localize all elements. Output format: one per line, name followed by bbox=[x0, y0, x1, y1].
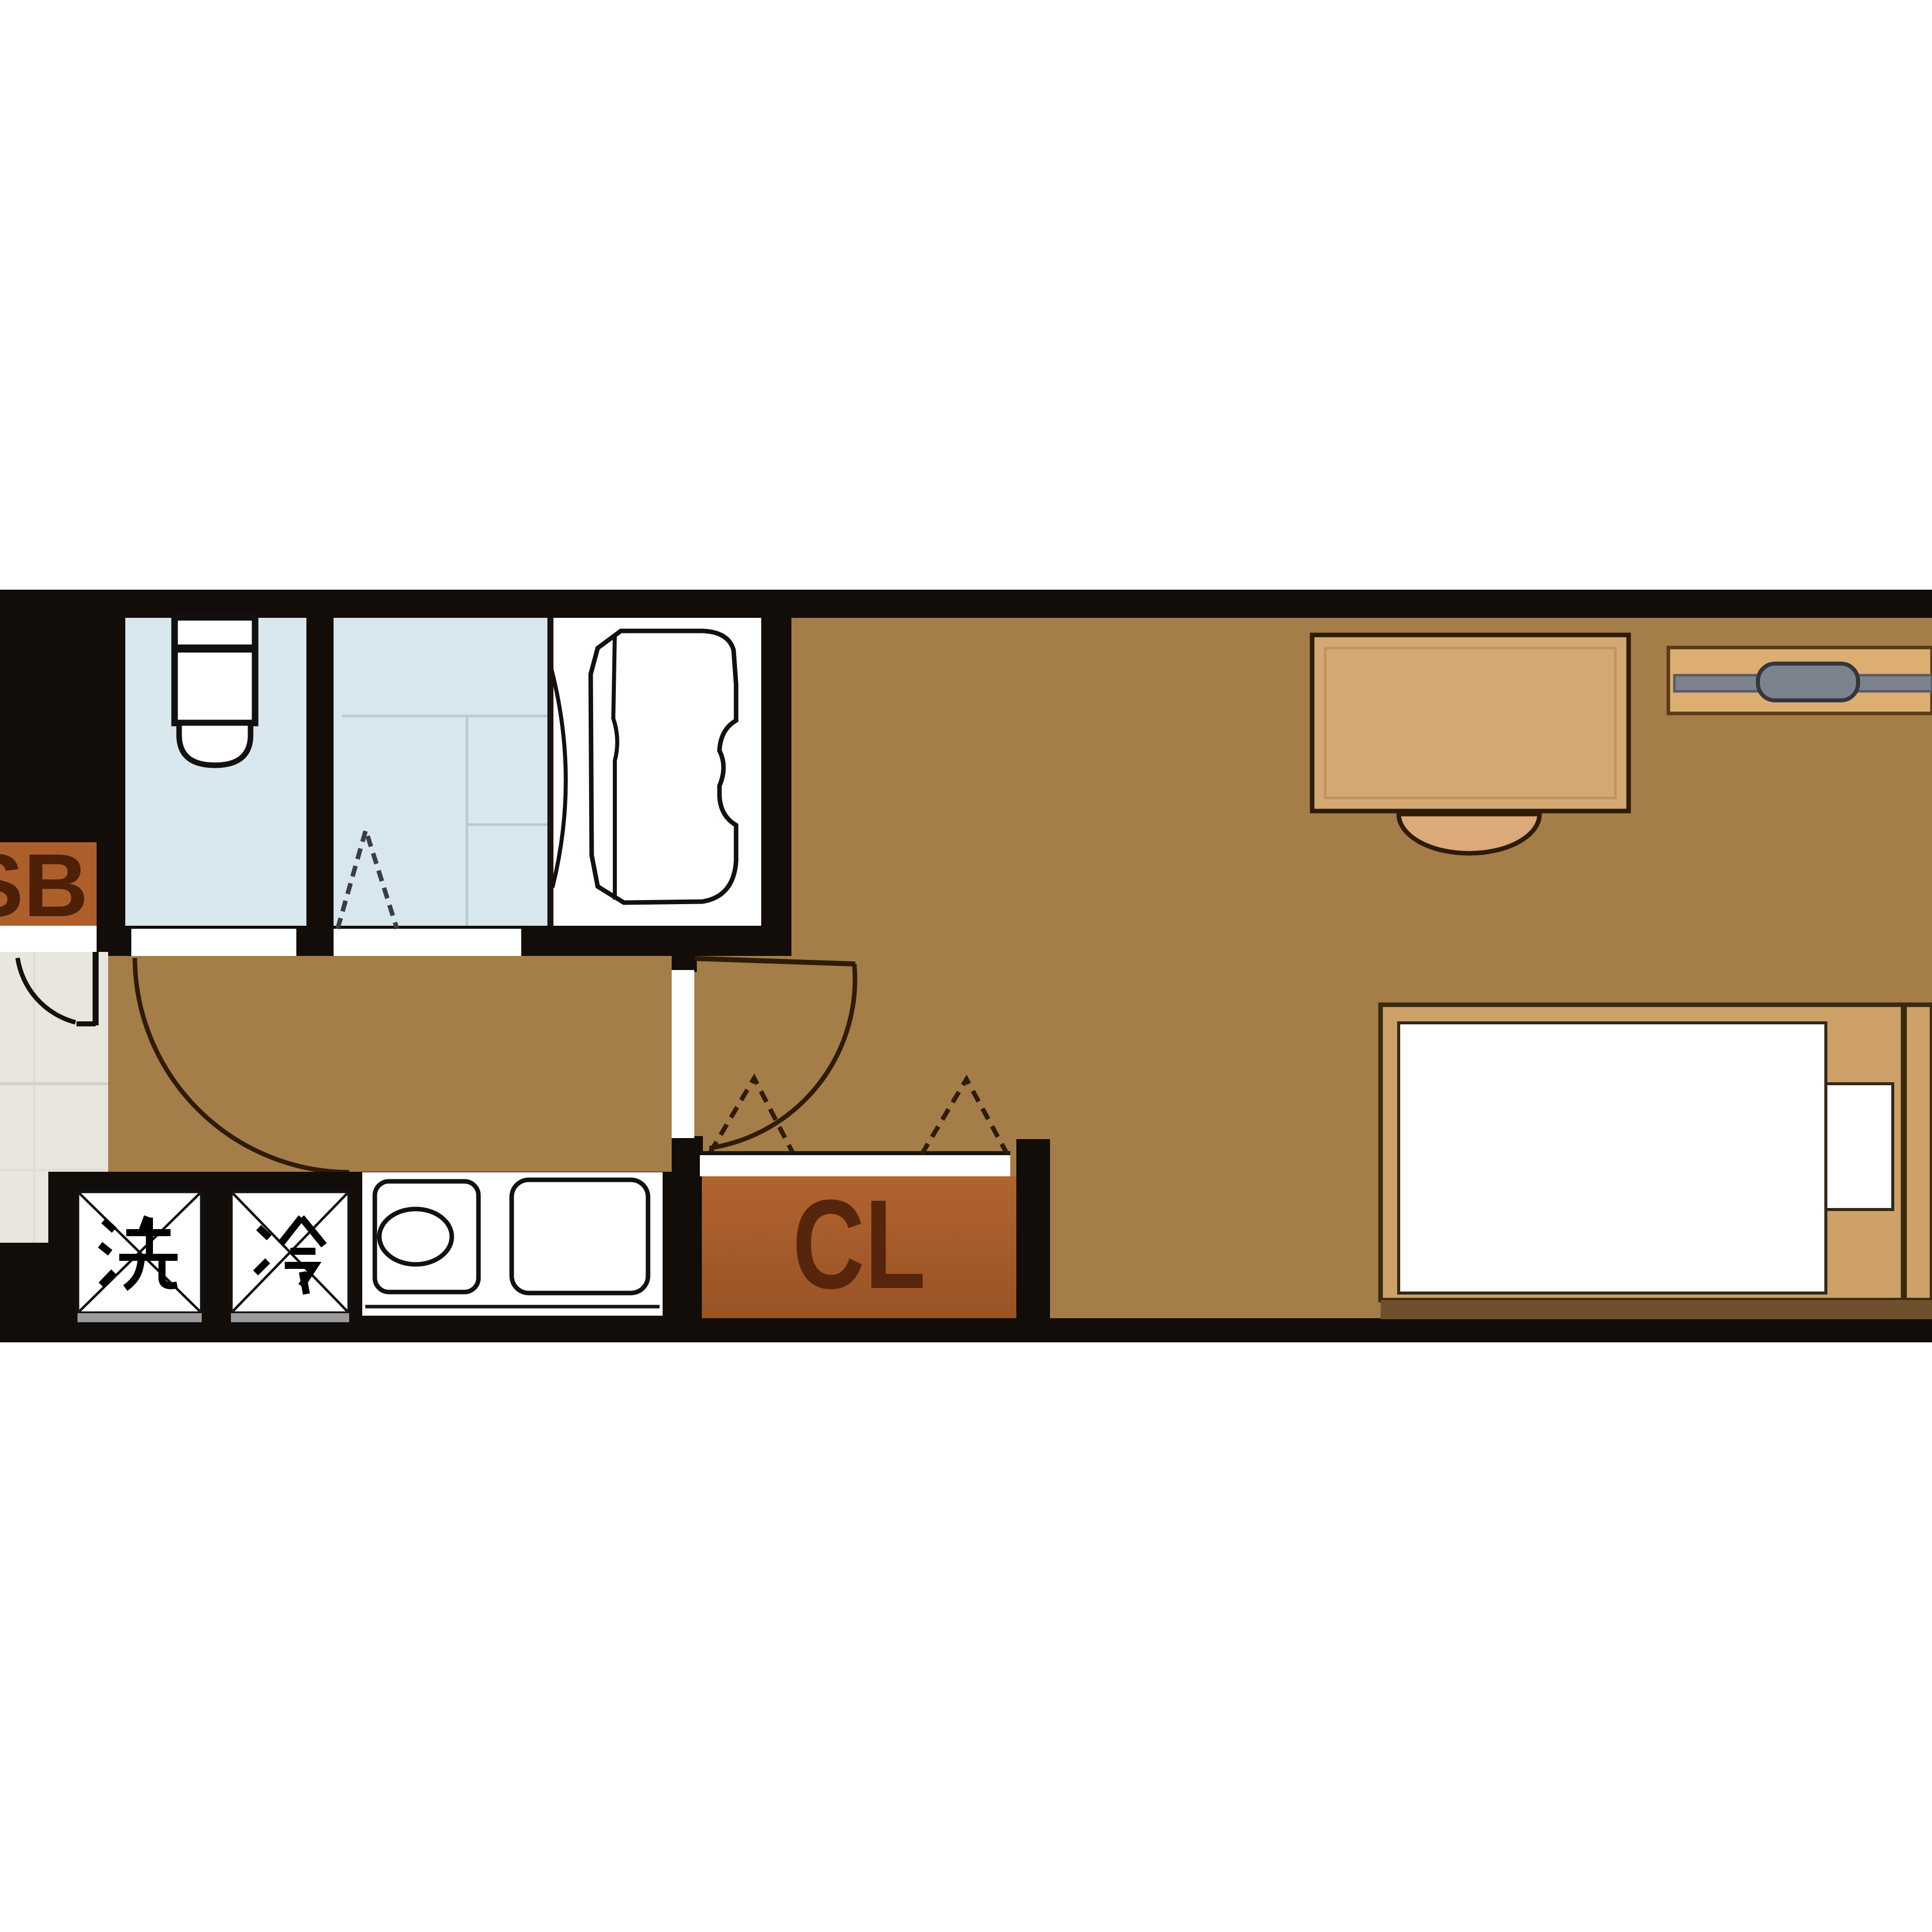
svg-text:CL: CL bbox=[792, 1174, 926, 1315]
svg-text:SB: SB bbox=[0, 835, 88, 935]
